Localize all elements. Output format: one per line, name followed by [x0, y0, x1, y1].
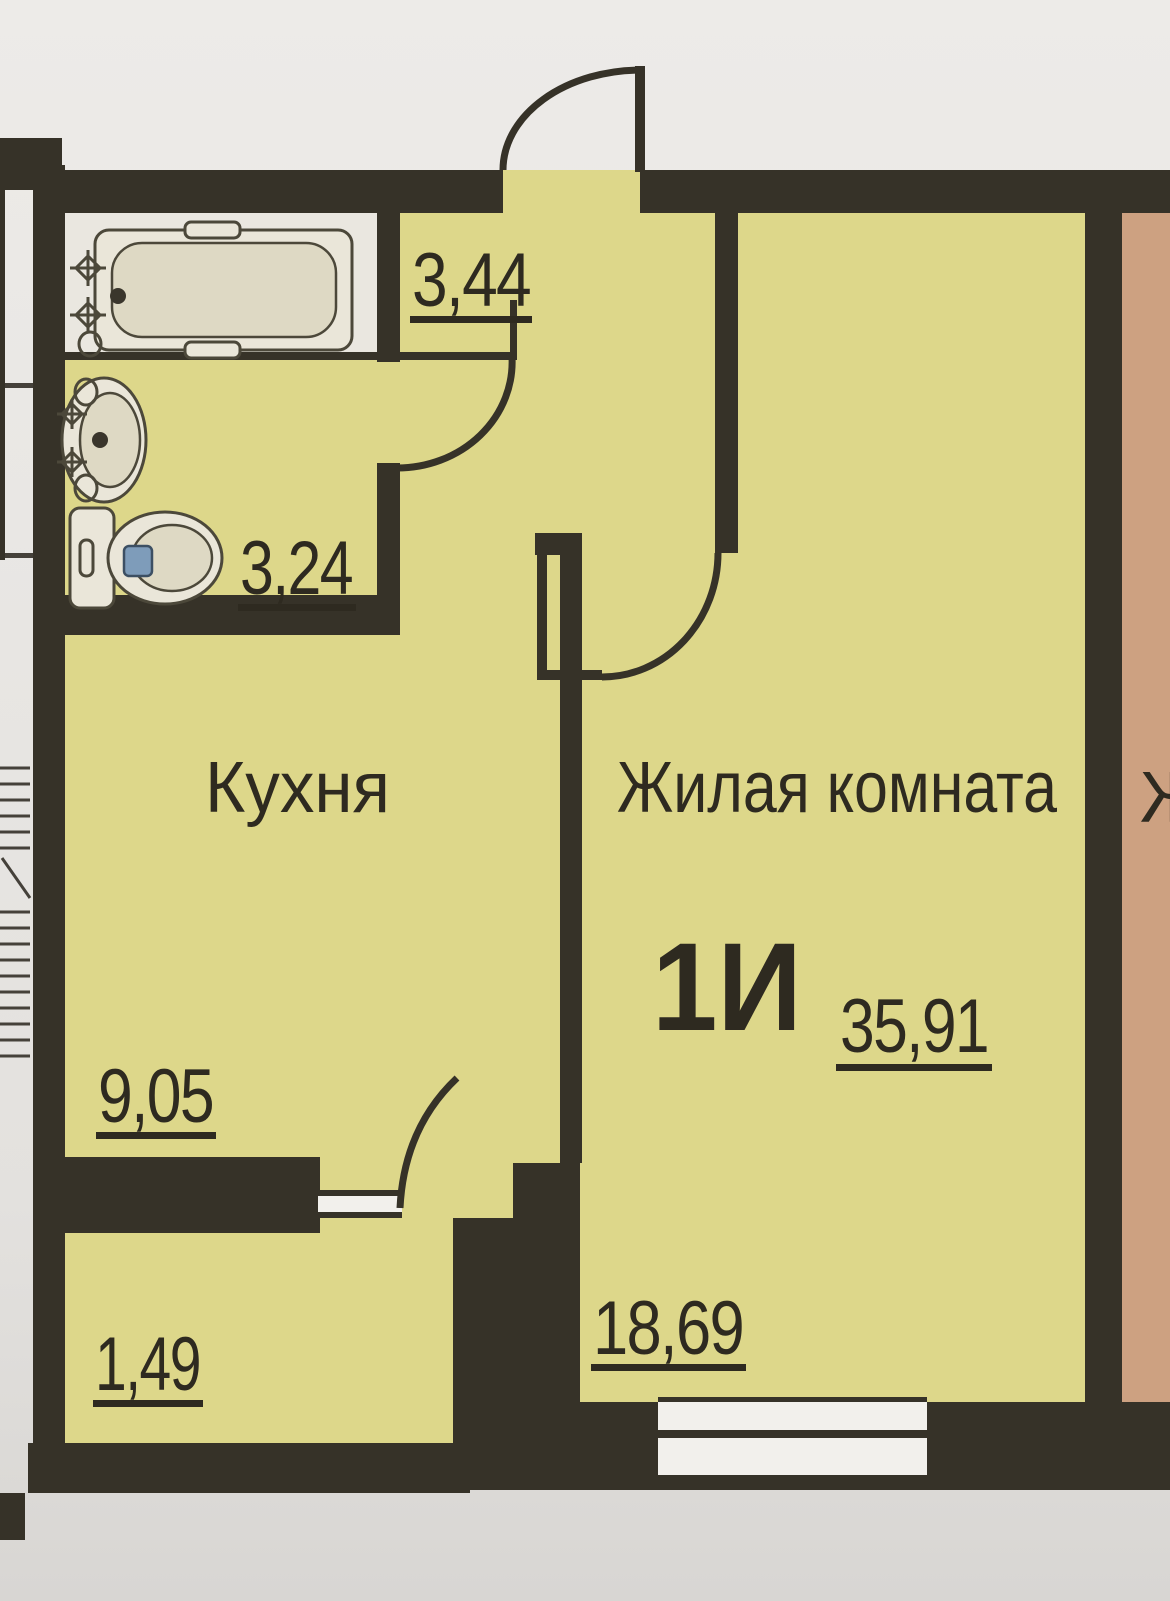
wall-wc-right-stub: [377, 463, 400, 603]
living-area-label: 18,69: [593, 1286, 743, 1371]
wall-bathroom-wc-divider: [65, 352, 517, 360]
floor-plan-drawing: 3,44 3,24 Кухня Жилая комната 1И 35,91 9…: [0, 0, 1170, 1601]
toilet-flush-button: [124, 546, 152, 576]
hallway-area-underline: [93, 1400, 203, 1407]
bathroom-area-underline: [410, 316, 532, 323]
door-swing-icon: [503, 70, 641, 170]
bathroom-area-label: 3,44: [412, 238, 531, 323]
wall-bathroom-right: [377, 213, 400, 362]
entrance-doorway-floor: [503, 170, 640, 215]
wall-bottom-left-step: [0, 1493, 25, 1540]
toilet-icon: [70, 508, 222, 608]
sink-bowl: [80, 393, 140, 487]
window-sill-line: [658, 1475, 927, 1490]
wall-bottom-right: [927, 1402, 1170, 1490]
living-area-underline: [591, 1364, 746, 1371]
bathtub-inner: [112, 243, 336, 337]
wall-apartment-divider-right: [1085, 213, 1122, 1402]
stair-treads: [0, 768, 30, 1056]
wall-living-door-stub: [535, 533, 582, 555]
wall-living-door-jamb-line: [537, 555, 547, 677]
sink-drain: [92, 432, 108, 448]
kitchen-area-underline: [96, 1132, 216, 1139]
bathtub-handle-top: [185, 222, 240, 238]
floor-plan-photo: 3,44 3,24 Кухня Жилая комната 1И 35,91 9…: [0, 0, 1170, 1601]
wall-left-edge-line: [0, 140, 5, 560]
kitchen-doorway-top-line: [318, 1190, 402, 1196]
wall-outer-left: [33, 165, 65, 1493]
neighbor-room-label-partial: Ж: [1140, 758, 1170, 838]
total-area-underline: [836, 1064, 992, 1071]
wc-area-underline: [238, 604, 356, 611]
entrance-door: [503, 66, 645, 172]
wall-partition-lower-thick: [513, 1163, 580, 1490]
bathtub-handle-bottom: [185, 342, 240, 358]
kitchen-room-label: Кухня: [205, 748, 390, 828]
wall-hallway-bottom-outer: [28, 1443, 470, 1493]
wall-hall-living-upper: [715, 213, 738, 553]
wall-window-left-pier: [580, 1402, 658, 1490]
wall-top-left-of-door: [33, 170, 503, 213]
apartment-type-label: 1И: [652, 918, 802, 1057]
window-glazing: [658, 1400, 927, 1477]
living-room-label: Жилая комната: [617, 748, 1058, 828]
kitchen-area-label: 9,05: [98, 1054, 213, 1139]
hallway-area-label: 1,49: [95, 1322, 200, 1407]
kitchen-doorway-opening: [318, 1196, 402, 1212]
bathtub-drain: [110, 288, 126, 304]
wall-kitchen-bottom: [65, 1157, 320, 1233]
window-outer-line: [658, 1397, 927, 1402]
wall-kitchen-living-partition: [560, 555, 582, 1163]
window-mid-line: [658, 1430, 927, 1438]
bathtub-icon: [70, 222, 352, 358]
entrance-door-leaf: [635, 66, 645, 172]
window-icon: [658, 1397, 927, 1490]
wc-area-label: 3,24: [240, 526, 353, 611]
stair-break-line: [2, 858, 30, 898]
wall-top-right-of-door: [640, 170, 1170, 213]
total-area-label: 35,91: [840, 984, 988, 1069]
kitchen-doorway-bottom-line: [318, 1212, 402, 1218]
